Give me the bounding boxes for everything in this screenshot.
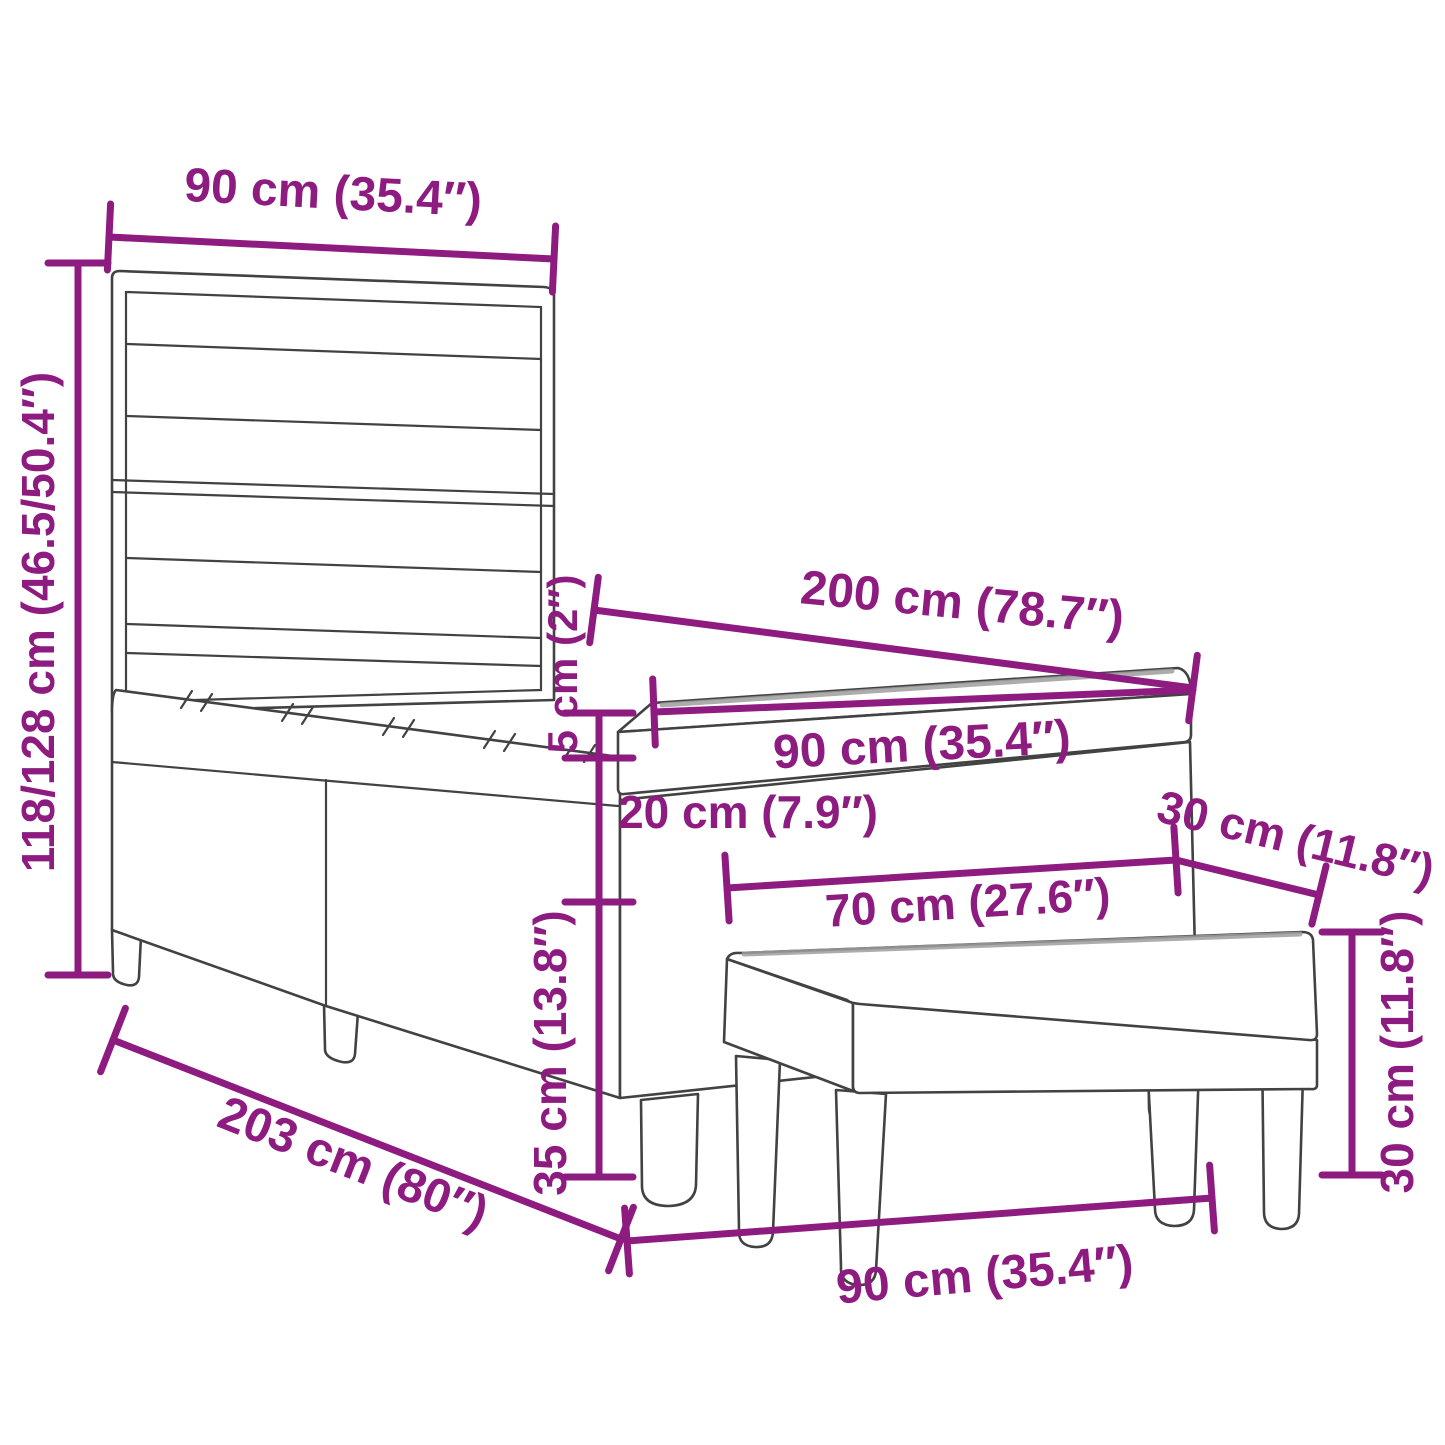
diagram-canvas: 90 cm (35.4″) 118/128 cm (46.5/50.4″) 20… — [0, 0, 1445, 1445]
dim-label-base-height: 20 cm (7.9″) — [618, 786, 878, 838]
bed-dimension-diagram: 90 cm (35.4″) 118/128 cm (46.5/50.4″) 20… — [0, 0, 1445, 1445]
dim-label-bench-height: 30 cm (11.8″) — [1371, 911, 1423, 1194]
dim-label-mattress-length: 200 cm (78.7″) — [798, 561, 1126, 645]
dim-label-topper-thickness: 5 cm (2″) — [539, 575, 586, 754]
dim-label-bed-height: 118/128 cm (46.5/50.4″) — [12, 372, 64, 872]
dim-label-bed-width: 90 cm (35.4″) — [834, 1236, 1135, 1315]
headboard — [112, 271, 554, 712]
dim-label-total-length: 203 cm (80″) — [211, 1087, 495, 1241]
dim-label-bench-depth: 30 cm (11.8″) — [1152, 780, 1439, 897]
dim-label-headboard-width: 90 cm (35.4″) — [183, 159, 483, 228]
bench — [724, 932, 1317, 1285]
dim-label-frame-height: 35 cm (13.8″) — [524, 910, 576, 1195]
